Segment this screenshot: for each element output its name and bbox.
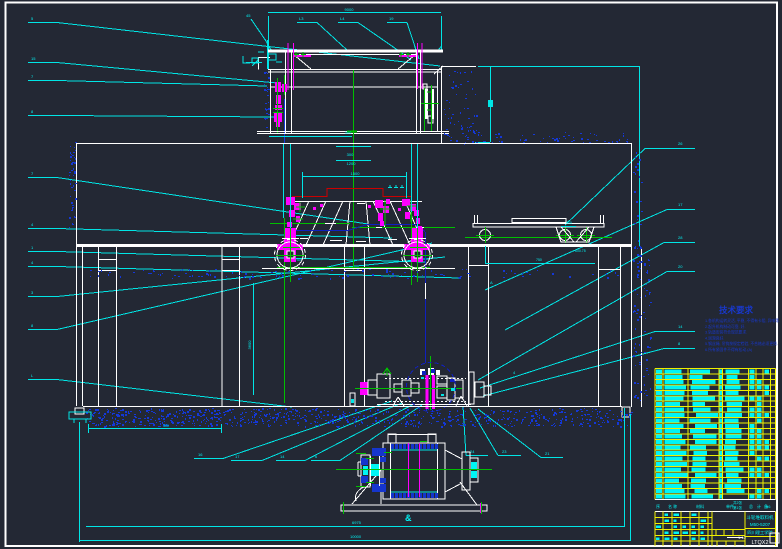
svg-text:名 称: 名 称 <box>668 503 677 509</box>
svg-text:&: & <box>405 513 412 523</box>
svg-text:技术要求: 技术要求 <box>719 305 754 315</box>
svg-text:1.各机构运转灵活, 平稳, 不得有卡阻, 异响等.: 1.各机构运转灵活, 平稳, 不得有卡阻, 异响等. <box>705 318 780 323</box>
svg-text:45: 45 <box>246 13 251 18</box>
svg-text:14: 14 <box>678 324 683 329</box>
svg-text:5.钢丝绳, 吊钩按规定检验, 不合格必须更换.: 5.钢丝绳, 吊钩按规定检验, 不合格必须更换. <box>705 341 778 346</box>
svg-text:3.轨道安装符合规范要求.: 3.轨道安装符合规范要求. <box>705 330 747 335</box>
svg-text:6.所有紧固件不得有松动.(A): 6.所有紧固件不得有松动.(A) <box>705 347 753 352</box>
svg-text:L3: L3 <box>299 16 304 21</box>
svg-text:16: 16 <box>198 452 203 457</box>
svg-text:14: 14 <box>280 454 285 459</box>
svg-text:15: 15 <box>31 56 36 61</box>
svg-text:1200: 1200 <box>347 161 357 166</box>
svg-text:17: 17 <box>678 202 683 207</box>
svg-text:斗轮堆取料机: 斗轮堆取料机 <box>747 514 774 521</box>
svg-text:300: 300 <box>347 152 354 157</box>
svg-text:序: 序 <box>656 503 660 509</box>
svg-text:3600: 3600 <box>247 340 252 350</box>
svg-text:20: 20 <box>678 264 683 269</box>
svg-text:M50-5207: M50-5207 <box>750 522 771 527</box>
svg-text:四川理工学院: 四川理工学院 <box>747 529 773 536</box>
svg-text:300: 300 <box>163 424 169 428</box>
svg-text:750: 750 <box>295 258 301 262</box>
svg-text:共2张: 共2张 <box>733 500 742 505</box>
svg-text:计: 计 <box>757 503 761 509</box>
svg-text:材料: 材料 <box>696 503 704 509</box>
svg-text:A: A <box>490 280 493 285</box>
svg-text:300: 300 <box>345 130 352 135</box>
svg-text:600.75: 600.75 <box>575 249 586 253</box>
svg-text:28: 28 <box>678 235 683 240</box>
svg-text:10000: 10000 <box>350 534 362 539</box>
svg-text:LTQX2: LTQX2 <box>751 540 768 546</box>
svg-text:19: 19 <box>389 16 394 21</box>
svg-text:24: 24 <box>470 449 475 454</box>
svg-text:6975: 6975 <box>352 520 362 525</box>
svg-text:750: 750 <box>536 258 542 262</box>
svg-text:4.润滑良好.: 4.润滑良好. <box>705 335 724 340</box>
svg-text:96: 96 <box>766 504 771 509</box>
svg-text:400: 400 <box>566 221 572 225</box>
svg-text:23: 23 <box>502 449 507 454</box>
svg-text:1500: 1500 <box>351 171 361 176</box>
svg-text:17: 17 <box>235 454 240 459</box>
svg-text:2.起升机构制动可靠. 好.: 2.起升机构制动可靠. 好. <box>705 324 746 329</box>
svg-text:第1张: 第1张 <box>733 505 742 510</box>
svg-text:26: 26 <box>678 141 683 146</box>
svg-text:9000: 9000 <box>345 7 355 12</box>
svg-text:L4: L4 <box>340 16 345 21</box>
svg-text:21: 21 <box>545 451 550 456</box>
svg-text:总: 总 <box>749 503 753 509</box>
